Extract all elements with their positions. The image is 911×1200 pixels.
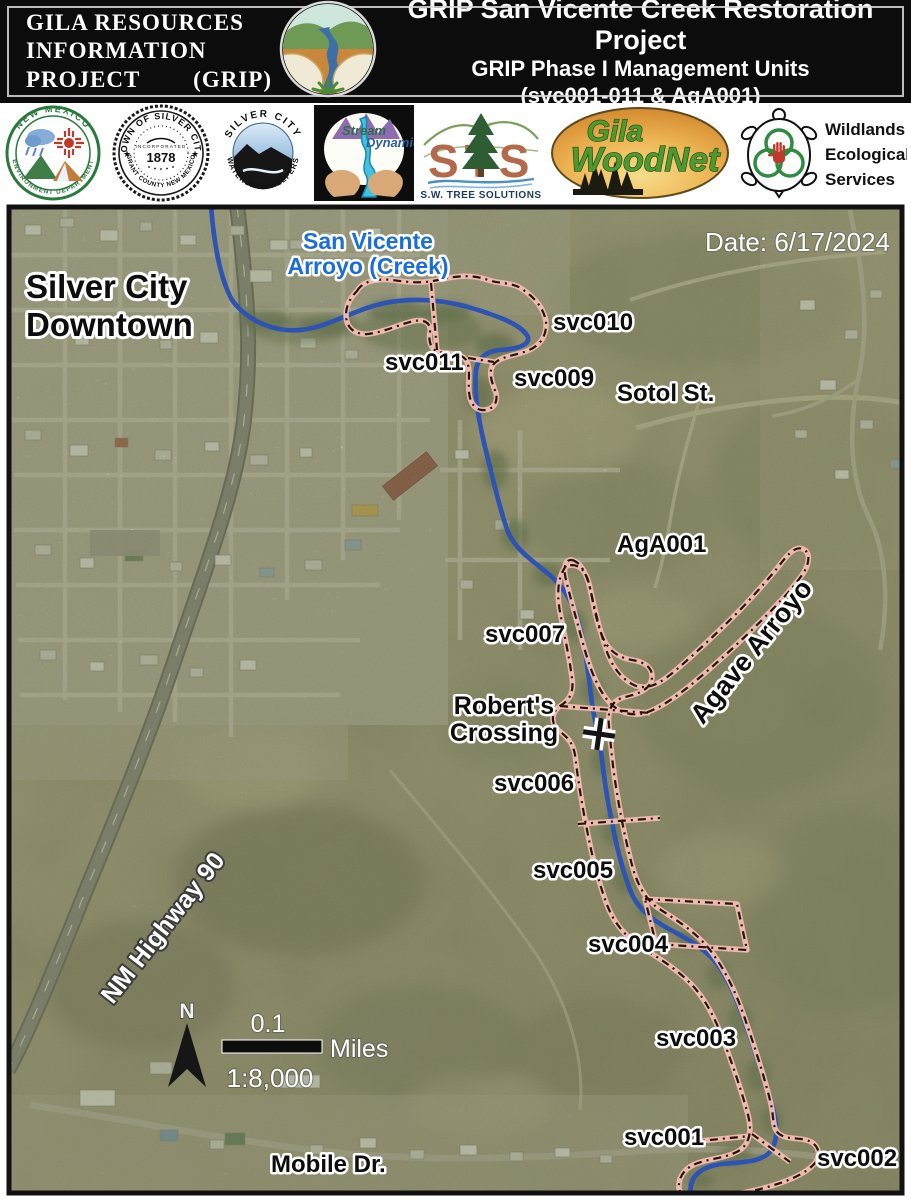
stream-dynamics-word2: Dynamics [366, 135, 414, 150]
org-line-2: INFORMATION [26, 37, 276, 65]
label-svc010: svc010 [553, 309, 633, 336]
org-line-3: PROJECT (GRIP) [26, 66, 276, 94]
label-svc005: svc005 [533, 857, 613, 884]
label-svc004: svc004 [588, 931, 669, 958]
org-line-3b: (GRIP) [193, 66, 272, 94]
town-year: 1878 [146, 150, 175, 165]
sts-logo-icon: STS S.W. TREE SOLUTIONS [420, 105, 542, 201]
map-subtitle: GRIP Phase I Management Units [380, 56, 901, 82]
woodnet-word2: WoodNet [570, 141, 720, 179]
org-line-3a: PROJECT [26, 66, 140, 94]
town-star-left: ★ [123, 149, 131, 159]
watershed-keepers-logo-icon: SILVER CITY WATERSHED KEEPERS [219, 107, 307, 199]
map-area: Silver City Downtown San Vicente Arroyo … [0, 203, 911, 1200]
grip-logo-icon [276, 0, 380, 104]
org-name-block: GILA RESOURCES INFORMATION PROJECT (GRIP… [0, 9, 276, 93]
label-crossing-line2: Crossing [450, 719, 558, 747]
scale-distance: 0.1 [251, 1010, 286, 1038]
label-aga001: AgA001 [617, 531, 706, 558]
wildlands-line1: Wildlands [825, 120, 905, 139]
sts-caption: S.W. TREE SOLUTIONS [420, 190, 541, 201]
label-mobile-dr: Mobile Dr. [271, 1151, 386, 1178]
label-svc009: svc009 [514, 365, 594, 392]
map-svg: Silver City Downtown San Vicente Arroyo … [0, 203, 911, 1200]
nmed-logo-icon: NEW MEXICO ENVIRONMENT DEPARTMENT [4, 104, 102, 202]
wildlands-logo-icon: Wildlands Ecological Services [737, 105, 907, 201]
label-date: Date: 6/17/2024 [705, 227, 890, 257]
stream-dynamics-logo-icon: Stream Dynamics [314, 105, 414, 201]
label-city-line2: Downtown [26, 306, 193, 343]
label-svc003: svc003 [656, 1025, 736, 1052]
gila-woodnet-logo-icon: Gila WoodNet [549, 105, 731, 201]
label-city-line1: Silver City [26, 268, 188, 305]
org-line-1: GILA RESOURCES [26, 9, 276, 37]
map-subtitle-units: (svc001-011 & AgA001) [380, 83, 901, 109]
north-label: N [179, 1000, 194, 1023]
scale-unit: Miles [330, 1035, 388, 1063]
page: GILA RESOURCES INFORMATION PROJECT (GRIP… [0, 0, 911, 1200]
label-svc006: svc006 [494, 770, 574, 797]
label-sotol-st: Sotol St. [617, 380, 714, 407]
header-banner: GILA RESOURCES INFORMATION PROJECT (GRIP… [0, 0, 911, 103]
wildlands-line3: Services [825, 170, 895, 189]
map-title: GRIP San Vicente Creek Restoration Proje… [380, 0, 901, 56]
town-seal-logo-icon: TOWN OF SILVER CITY GRANT COUNTY NEW MEX… [109, 103, 213, 203]
label-creek-line1: San Vicente [303, 228, 433, 254]
label-svc002: svc002 [817, 1145, 897, 1172]
wildlands-line2: Ecological [825, 145, 907, 164]
town-star-right: ★ [191, 149, 199, 159]
label-svc011: svc011 [385, 349, 464, 376]
scale-ratio: 1:8,000 [227, 1063, 314, 1093]
town-incorporated: INCORPORATED [135, 144, 186, 149]
label-svc007: svc007 [485, 621, 565, 648]
label-creek-line2: Arroyo (Creek) [287, 253, 448, 279]
label-crossing-line1: Robert's [454, 692, 554, 720]
map-title-block: GRIP San Vicente Creek Restoration Proje… [380, 0, 911, 109]
partner-logo-strip: NEW MEXICO ENVIRONMENT DEPARTMENT [0, 103, 911, 203]
label-svc001: svc001 [624, 1124, 704, 1151]
